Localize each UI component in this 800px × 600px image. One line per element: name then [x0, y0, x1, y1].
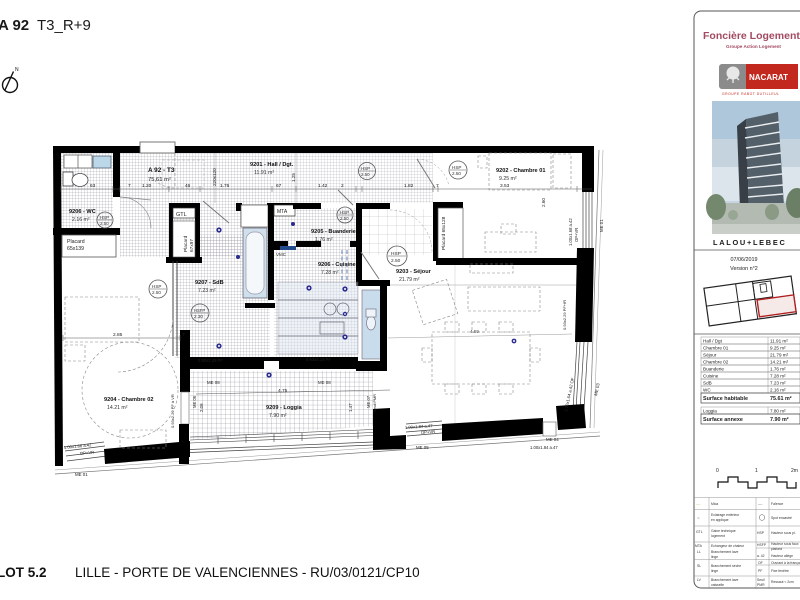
svg-text:0.93x2.29 PF+fR: 0.93x2.29 PF+fR — [562, 300, 567, 330]
svg-text:2.50: 2.50 — [100, 221, 109, 226]
svg-text:220x120: 220x120 — [212, 168, 217, 186]
svg-text:LILLE - PORTE DE VALENCIENNES: LILLE - PORTE DE VALENCIENNES - RU/03/01… — [75, 565, 420, 580]
svg-text:ME 04: ME 04 — [546, 437, 559, 442]
svg-text:Ressaut < 2cm: Ressaut < 2cm — [771, 580, 794, 584]
svg-text:Branchement lave: Branchement lave — [711, 578, 738, 582]
svg-text:Placard: Placard — [67, 239, 85, 245]
svg-text:MTA: MTA — [695, 544, 703, 548]
svg-text:NACARAT: NACARAT — [749, 73, 788, 82]
svg-text:Chambre 01: Chambre 01 — [703, 346, 729, 351]
svg-text:A 92 - T3: A 92 - T3 — [148, 167, 175, 174]
svg-text:----: ---- — [758, 502, 763, 506]
svg-text:Branchement lave: Branchement lave — [711, 550, 738, 554]
svg-text:a. 42: a. 42 — [757, 554, 765, 558]
svg-text:Cuisine: Cuisine — [703, 374, 719, 379]
svg-text:21.79 m²: 21.79 m² — [399, 277, 420, 283]
svg-text:0.93x2.29 PF: 0.93x2.29 PF — [306, 357, 331, 362]
svg-text:Placard: Placard — [183, 235, 189, 252]
svg-text:GROUPE RABOT DUTILLEUL: GROUPE RABOT DUTILLEUL — [722, 92, 779, 96]
svg-text:Surface annexe: Surface annexe — [703, 417, 743, 423]
svg-text:9203 - Séjour: 9203 - Séjour — [396, 269, 432, 275]
svg-text:Foncière Logement: Foncière Logement — [703, 30, 800, 42]
svg-text:HSFP: HSFP — [757, 543, 767, 547]
svg-text:2m: 2m — [791, 468, 798, 474]
svg-text:Echangeur de chaleur: Echangeur de chaleur — [711, 544, 745, 548]
svg-text:14.21 m²: 14.21 m² — [107, 405, 128, 411]
svg-text:ME 08: ME 08 — [318, 380, 331, 385]
svg-text:Seuil: Seuil — [757, 578, 765, 582]
svg-text:1.47: 1.47 — [348, 403, 353, 412]
svg-text:ME 05: ME 05 — [416, 445, 429, 450]
svg-text:1.25: 1.25 — [291, 173, 296, 182]
svg-text:HSFP: HSFP — [194, 308, 205, 313]
svg-text:HSP: HSP — [361, 166, 370, 171]
svg-text:7.90 m²: 7.90 m² — [770, 417, 789, 423]
svg-text:9206 - Cuisine: 9206 - Cuisine — [318, 262, 356, 268]
svg-text:4.59: 4.59 — [470, 329, 479, 334]
svg-text:Eclairage extérieur: Eclairage extérieur — [711, 513, 740, 517]
svg-text:SdB: SdB — [703, 381, 712, 386]
svg-text:ME 06: ME 06 — [192, 395, 197, 408]
svg-text:1: 1 — [755, 468, 758, 474]
svg-text:2.30: 2.30 — [194, 314, 203, 319]
svg-text:Chambre 02: Chambre 02 — [703, 360, 729, 365]
svg-text:A 92: A 92 — [0, 17, 29, 34]
svg-text:ME 01: ME 01 — [75, 472, 88, 477]
svg-text:----: ---- — [696, 502, 701, 506]
svg-text:9.25 m²: 9.25 m² — [499, 176, 517, 182]
svg-text:en applique: en applique — [711, 518, 729, 522]
svg-text:2.50: 2.50 — [152, 290, 161, 295]
svg-text:7.23 m²: 7.23 m² — [198, 288, 216, 294]
svg-text:2.16 m²: 2.16 m² — [770, 388, 786, 393]
svg-text:7.23 m²: 7.23 m² — [770, 381, 786, 386]
svg-text:9201 - Hall / Dgt.: 9201 - Hall / Dgt. — [250, 162, 294, 168]
svg-text:HSP: HSP — [452, 165, 461, 170]
svg-text:Séjour: Séjour — [703, 353, 717, 358]
svg-text:65x139: 65x139 — [67, 246, 84, 252]
svg-text:LOT 5.2: LOT 5.2 — [0, 565, 47, 580]
svg-text:ME 01: ME 01 — [599, 219, 604, 232]
svg-text:vaisselle: vaisselle — [711, 583, 724, 587]
svg-text:Mica: Mica — [711, 502, 718, 506]
svg-text:2.50: 2.50 — [452, 171, 461, 176]
svg-text:7: 7 — [182, 332, 185, 338]
svg-text:1.76 m²: 1.76 m² — [770, 367, 786, 372]
svg-text:T3_R+9: T3_R+9 — [37, 17, 91, 34]
svg-text:PMR: PMR — [757, 583, 765, 587]
svg-text:Surface habitable: Surface habitable — [703, 396, 748, 402]
svg-text:9202 - Chambre 01: 9202 - Chambre 01 — [496, 168, 545, 174]
svg-text:1.76: 1.76 — [220, 183, 230, 189]
svg-text:11.91 m²: 11.91 m² — [770, 339, 788, 344]
svg-text:1.76 m²: 1.76 m² — [315, 237, 333, 243]
svg-text:14.21 m²: 14.21 m² — [770, 360, 789, 365]
svg-text:1.00x1.84 a.47: 1.00x1.84 a.47 — [530, 445, 558, 450]
svg-text:21.79 m²: 21.79 m² — [770, 353, 789, 358]
svg-text:WC: WC — [703, 388, 711, 393]
svg-text:9205 - Buanderie: 9205 - Buanderie — [311, 229, 356, 235]
svg-text:HSP: HSP — [757, 531, 765, 535]
svg-text:75.61 m²: 75.61 m² — [148, 177, 171, 183]
svg-text:Hauteur sous faux: Hauteur sous faux — [771, 542, 799, 546]
svg-text:9204 - Chambre 02: 9204 - Chambre 02 — [104, 397, 153, 403]
svg-text:75.61 m²: 75.61 m² — [770, 396, 792, 402]
svg-text:1.42: 1.42 — [318, 183, 328, 189]
svg-text:7.28 m²: 7.28 m² — [770, 374, 786, 379]
svg-text:2.60: 2.60 — [541, 198, 546, 207]
svg-text:logement: logement — [711, 534, 725, 538]
svg-text:Groupe Action Logement: Groupe Action Logement — [726, 44, 781, 49]
svg-text:OF: OF — [758, 561, 763, 565]
svg-text:7.80 m²: 7.80 m² — [770, 409, 786, 414]
svg-text:linge: linge — [711, 555, 718, 559]
svg-text:3.53: 3.53 — [500, 183, 510, 189]
svg-text:Branchement sèche: Branchement sèche — [711, 564, 741, 568]
svg-text:GTL: GTL — [176, 212, 187, 218]
svg-text:Seuil PMR: Seuil PMR — [373, 394, 377, 412]
svg-text:2.85: 2.85 — [113, 332, 123, 338]
svg-text:GTL: GTL — [696, 530, 703, 534]
svg-text:Version n°2: Version n°2 — [730, 266, 758, 272]
svg-text:7.28 m²: 7.28 m² — [321, 270, 339, 276]
svg-text:67x97: 67x97 — [189, 239, 195, 252]
svg-text:4.75: 4.75 — [278, 388, 288, 394]
svg-text:9207 - SdB: 9207 - SdB — [195, 280, 224, 286]
svg-text:ME 07: ME 07 — [366, 395, 371, 408]
svg-text:9209 - Loggia: 9209 - Loggia — [266, 405, 303, 411]
svg-text:67: 67 — [276, 183, 282, 189]
svg-text:0.90x2.29 PF: 0.90x2.29 PF — [198, 358, 223, 363]
svg-text:9206 - WC: 9206 - WC — [69, 209, 96, 215]
svg-text:ME 08: ME 08 — [207, 380, 220, 385]
svg-text:HSP: HSP — [340, 210, 349, 215]
svg-text:☼: ☼ — [697, 516, 700, 520]
svg-text:Placard 65x128: Placard 65x128 — [441, 216, 447, 250]
svg-text:Hauteur allège: Hauteur allège — [771, 554, 793, 558]
svg-text:7.90 m²: 7.90 m² — [269, 413, 287, 419]
svg-text:MTA: MTA — [277, 209, 288, 215]
svg-text:63: 63 — [90, 183, 96, 189]
svg-text:11.91 m²: 11.91 m² — [254, 170, 274, 176]
svg-text:OP+VR: OP+VR — [574, 228, 579, 242]
svg-text:0: 0 — [716, 468, 719, 474]
svg-text:2: 2 — [341, 183, 344, 189]
svg-text:SL: SL — [697, 564, 701, 568]
svg-text:HSP: HSP — [152, 284, 161, 289]
svg-text:2.08: 2.08 — [199, 403, 204, 412]
svg-text:07/06/2019: 07/06/2019 — [731, 257, 758, 263]
svg-text:7: 7 — [128, 183, 131, 189]
svg-text:PF: PF — [758, 569, 762, 573]
svg-text:Loggia: Loggia — [703, 409, 717, 414]
svg-text:Fixe fenêtre: Fixe fenêtre — [771, 569, 789, 573]
svg-text:1.82: 1.82 — [404, 183, 414, 189]
svg-text:46: 46 — [185, 183, 191, 189]
svg-text:HSP: HSP — [391, 251, 401, 257]
svg-text:1.20: 1.20 — [142, 183, 152, 189]
svg-text:HSP: HSP — [100, 215, 109, 220]
svg-text:Buanderie: Buanderie — [703, 367, 724, 372]
svg-text:2.50: 2.50 — [340, 216, 349, 221]
svg-text:Hauteur sous pl.: Hauteur sous pl. — [771, 531, 796, 535]
svg-text:2.50: 2.50 — [361, 172, 370, 177]
svg-text:Faïence: Faïence — [771, 502, 783, 506]
svg-text:LALOU+LEBEC: LALOU+LEBEC — [713, 238, 787, 247]
svg-text:N: N — [15, 67, 19, 73]
svg-text:Spot encastré: Spot encastré — [771, 516, 792, 520]
svg-text:LL: LL — [697, 550, 701, 554]
svg-text:OP+VR: OP+VR — [421, 429, 436, 435]
svg-text:9.25 m²: 9.25 m² — [770, 346, 786, 351]
svg-text:plafond: plafond — [771, 547, 782, 551]
svg-text:0.93x2.29 PF à VR: 0.93x2.29 PF à VR — [170, 394, 175, 428]
svg-text:7: 7 — [436, 183, 439, 189]
svg-text:Ouvrant à la frança.: Ouvrant à la frança. — [771, 561, 800, 565]
svg-text:Gaine technique: Gaine technique — [711, 529, 736, 533]
svg-text:VMC: VMC — [276, 252, 287, 257]
svg-text:2.16 m²: 2.16 m² — [72, 217, 90, 223]
svg-text:1.00x1.68 a.42: 1.00x1.68 a.42 — [568, 218, 573, 246]
svg-text:Hall / Dgt: Hall / Dgt — [703, 339, 723, 344]
svg-text:linge: linge — [711, 569, 718, 573]
svg-text:2.50: 2.50 — [391, 258, 401, 264]
